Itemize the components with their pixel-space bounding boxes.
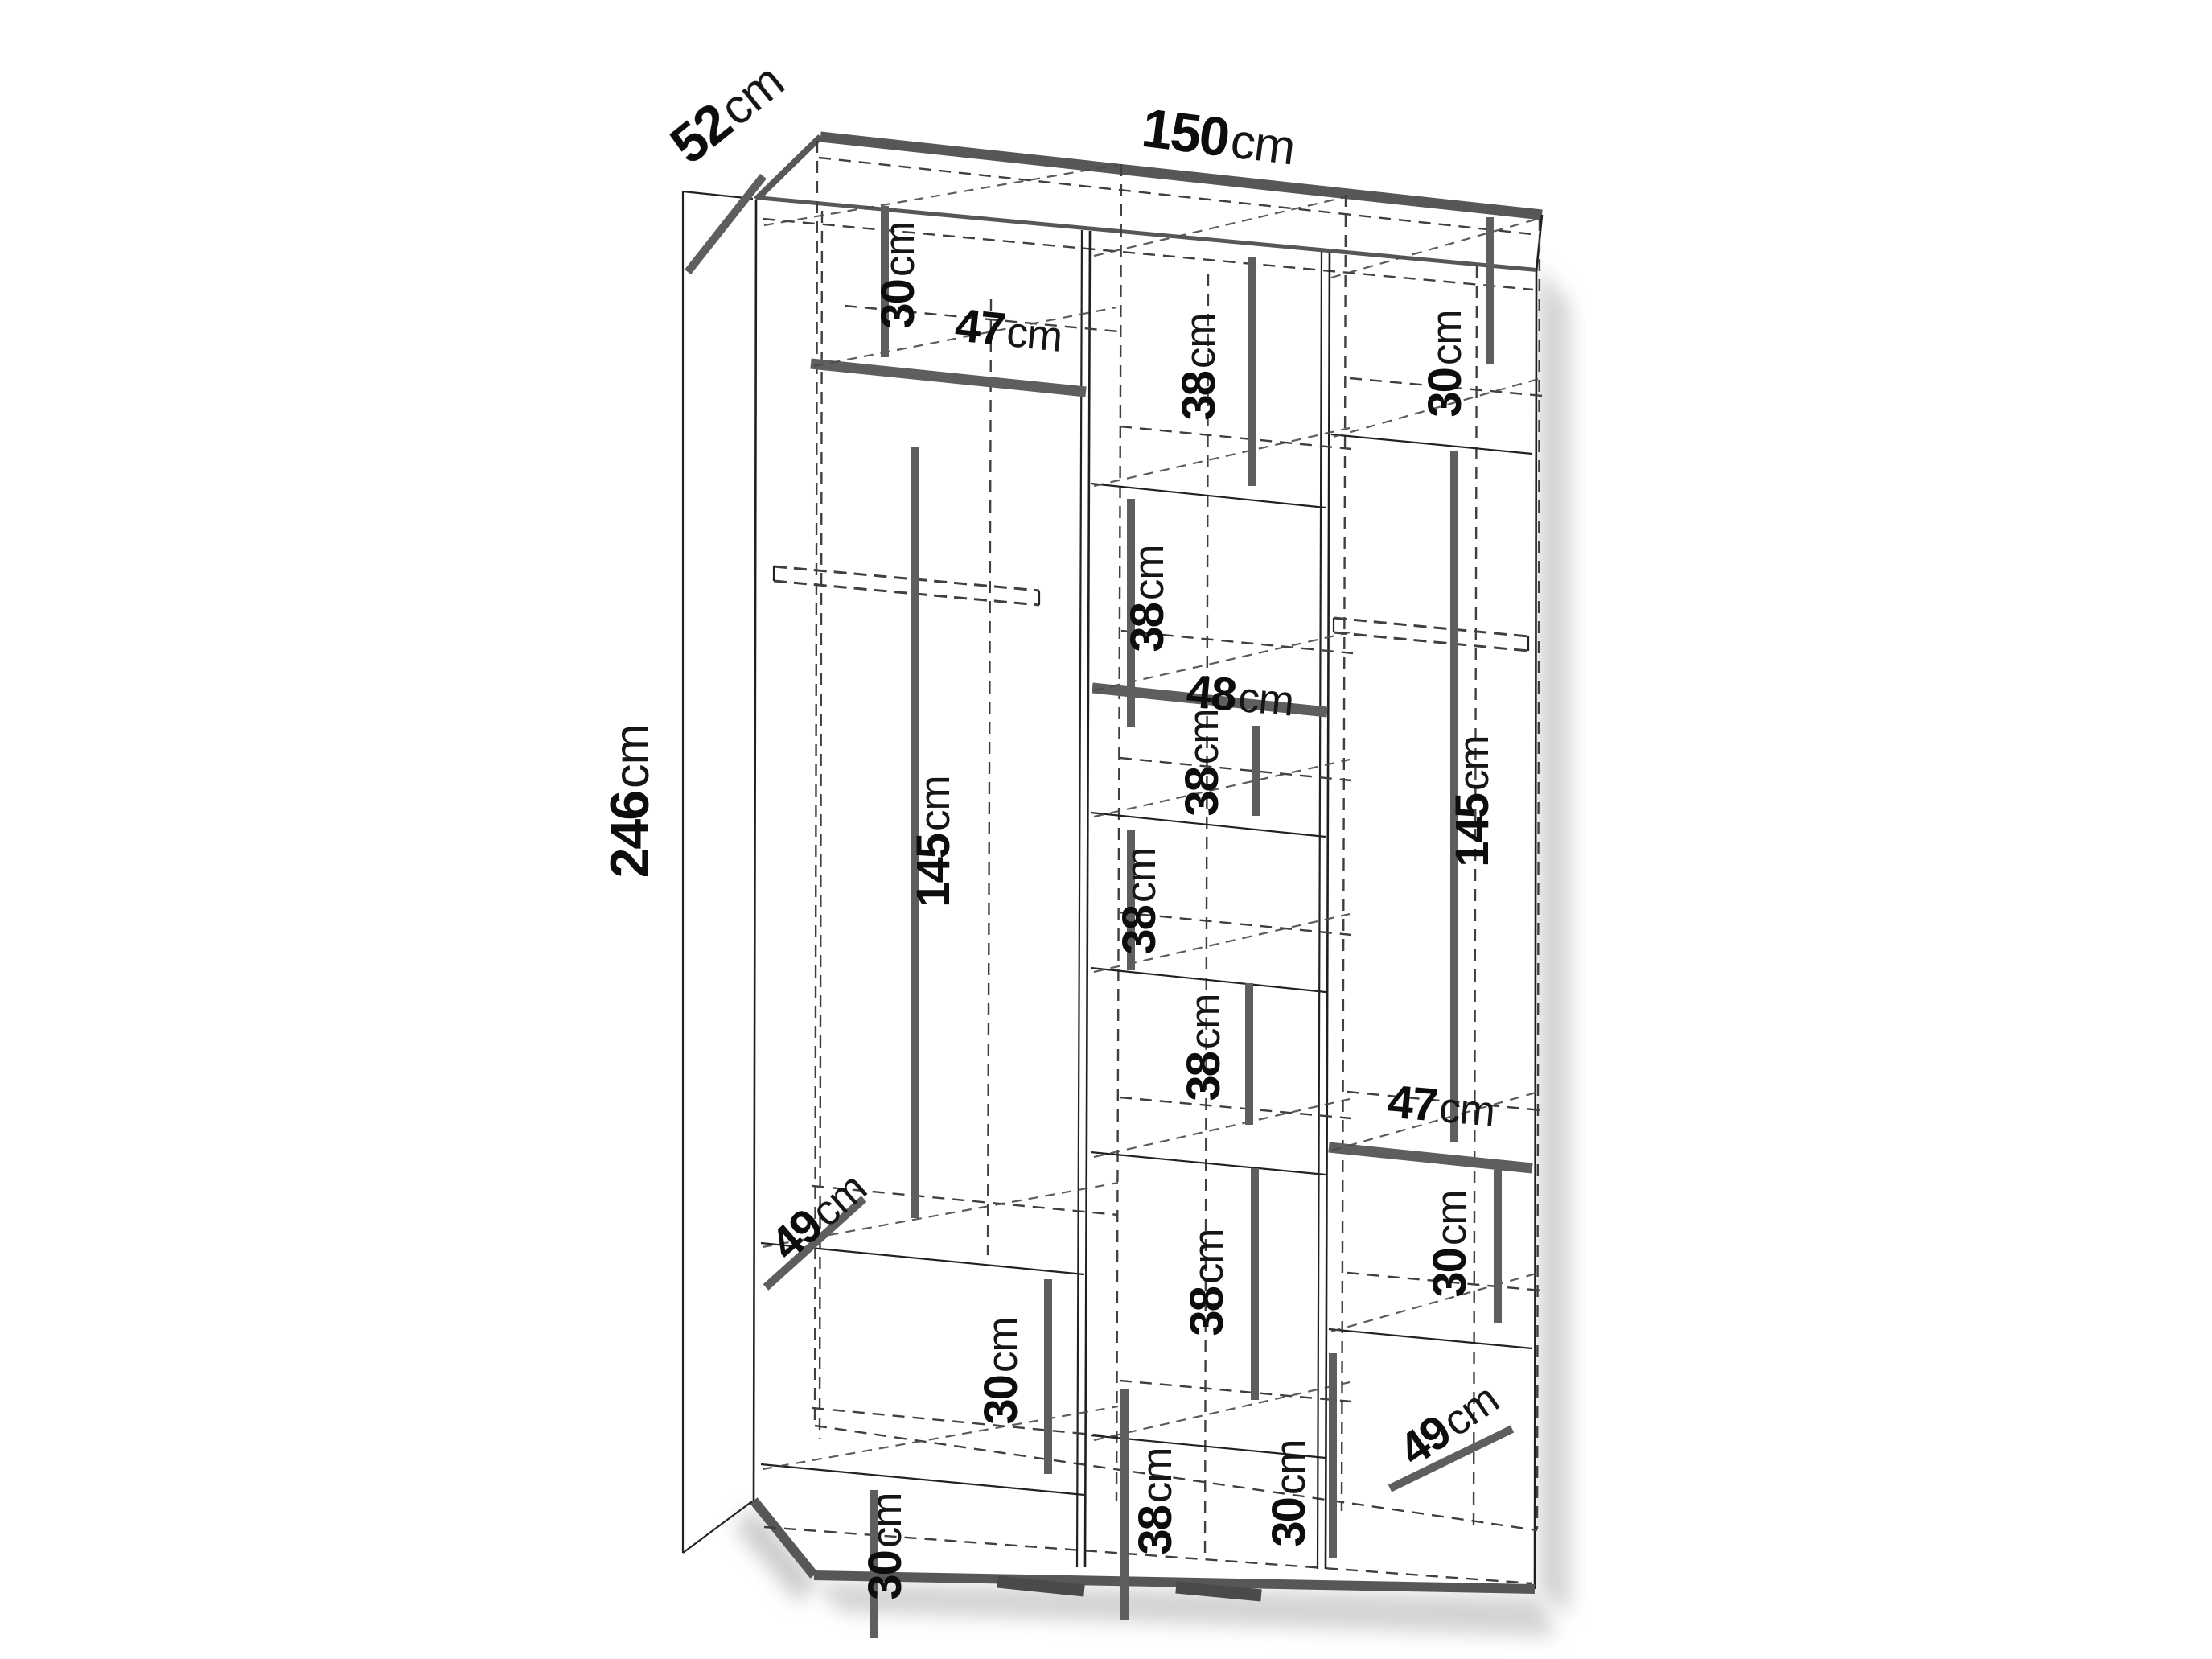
dim-label-right-top-30: 30cm xyxy=(1419,310,1471,417)
wardrobe-dimension-diagram: 150cm 52cm 246cm 30cm 47cm 145cm 49cm 30… xyxy=(0,0,2212,1659)
diagram-stage: 150cm 52cm 246cm 30cm 47cm 145cm 49cm 30… xyxy=(0,0,2212,1659)
dim-label-left-low-30: 30cm xyxy=(975,1317,1027,1424)
dim-label-width: 150cm xyxy=(1138,97,1298,177)
dim-label-left-bottom-30: 30cm xyxy=(859,1492,911,1599)
dim-label-middle-38-2: 38cm xyxy=(1121,545,1174,652)
dim-label-middle-38-1: 38cm xyxy=(1173,313,1225,420)
dim-label-right-145: 145cm xyxy=(1446,735,1499,867)
depth-dimension-bar xyxy=(688,176,763,272)
dim-label-middle-38-4: 38cm xyxy=(1113,847,1166,954)
dim-label-middle-38-7: 38cm xyxy=(1129,1447,1182,1554)
dim-label-middle-38-6: 38cm xyxy=(1181,1229,1233,1336)
dim-label-depth: 52cm xyxy=(659,50,794,176)
dim-label-right-low-30: 30cm xyxy=(1424,1190,1476,1297)
outer-dimension-lines xyxy=(683,176,763,1553)
dim-label-middle-38-5: 38cm xyxy=(1178,994,1230,1101)
dim-label-middle-38-3: 38cm xyxy=(1176,709,1228,816)
dim-label-height: 246cm xyxy=(599,725,660,879)
dim-label-left-top-30: 30cm xyxy=(872,221,924,328)
dim-label-right-bottom-30: 30cm xyxy=(1263,1439,1315,1546)
dim-label-left-145: 145cm xyxy=(907,776,960,907)
